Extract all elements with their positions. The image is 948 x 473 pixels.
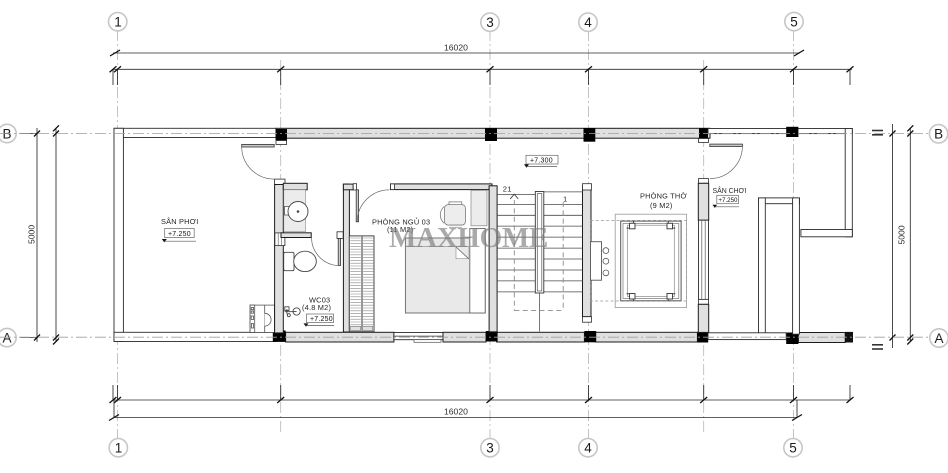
- svg-text:(9 M2): (9 M2): [650, 201, 673, 210]
- svg-text:5000: 5000: [27, 225, 37, 244]
- svg-text:MAXHOME: MAXHOME: [389, 222, 548, 254]
- svg-text:A: A: [3, 330, 12, 345]
- svg-text:5: 5: [790, 14, 798, 29]
- svg-text:1: 1: [115, 441, 123, 456]
- svg-text:PHÒNG THỜ: PHÒNG THỜ: [640, 192, 687, 201]
- svg-text:1: 1: [114, 15, 122, 30]
- svg-text:(4.8 M2): (4.8 M2): [302, 303, 331, 312]
- svg-text:SÂN CHƠI: SÂN CHƠI: [713, 186, 747, 195]
- svg-text:+7.250: +7.250: [310, 316, 333, 323]
- svg-text:+7.250: +7.250: [718, 197, 738, 204]
- svg-text:+7.300: +7.300: [530, 157, 553, 164]
- svg-text:B: B: [934, 127, 943, 142]
- svg-text:3: 3: [486, 441, 494, 456]
- svg-text:1: 1: [563, 195, 567, 204]
- svg-text:3: 3: [486, 15, 494, 30]
- svg-text:4: 4: [584, 441, 592, 456]
- svg-text:SÂN PHƠI: SÂN PHƠI: [161, 217, 199, 226]
- svg-text:5000: 5000: [897, 225, 907, 244]
- svg-text:21: 21: [503, 184, 512, 193]
- svg-text:16020: 16020: [444, 407, 468, 417]
- svg-text:+7.250: +7.250: [168, 231, 191, 238]
- svg-text:A: A: [935, 331, 944, 346]
- svg-text:5: 5: [789, 441, 797, 456]
- svg-text:4: 4: [584, 15, 592, 30]
- svg-text:16020: 16020: [444, 43, 468, 53]
